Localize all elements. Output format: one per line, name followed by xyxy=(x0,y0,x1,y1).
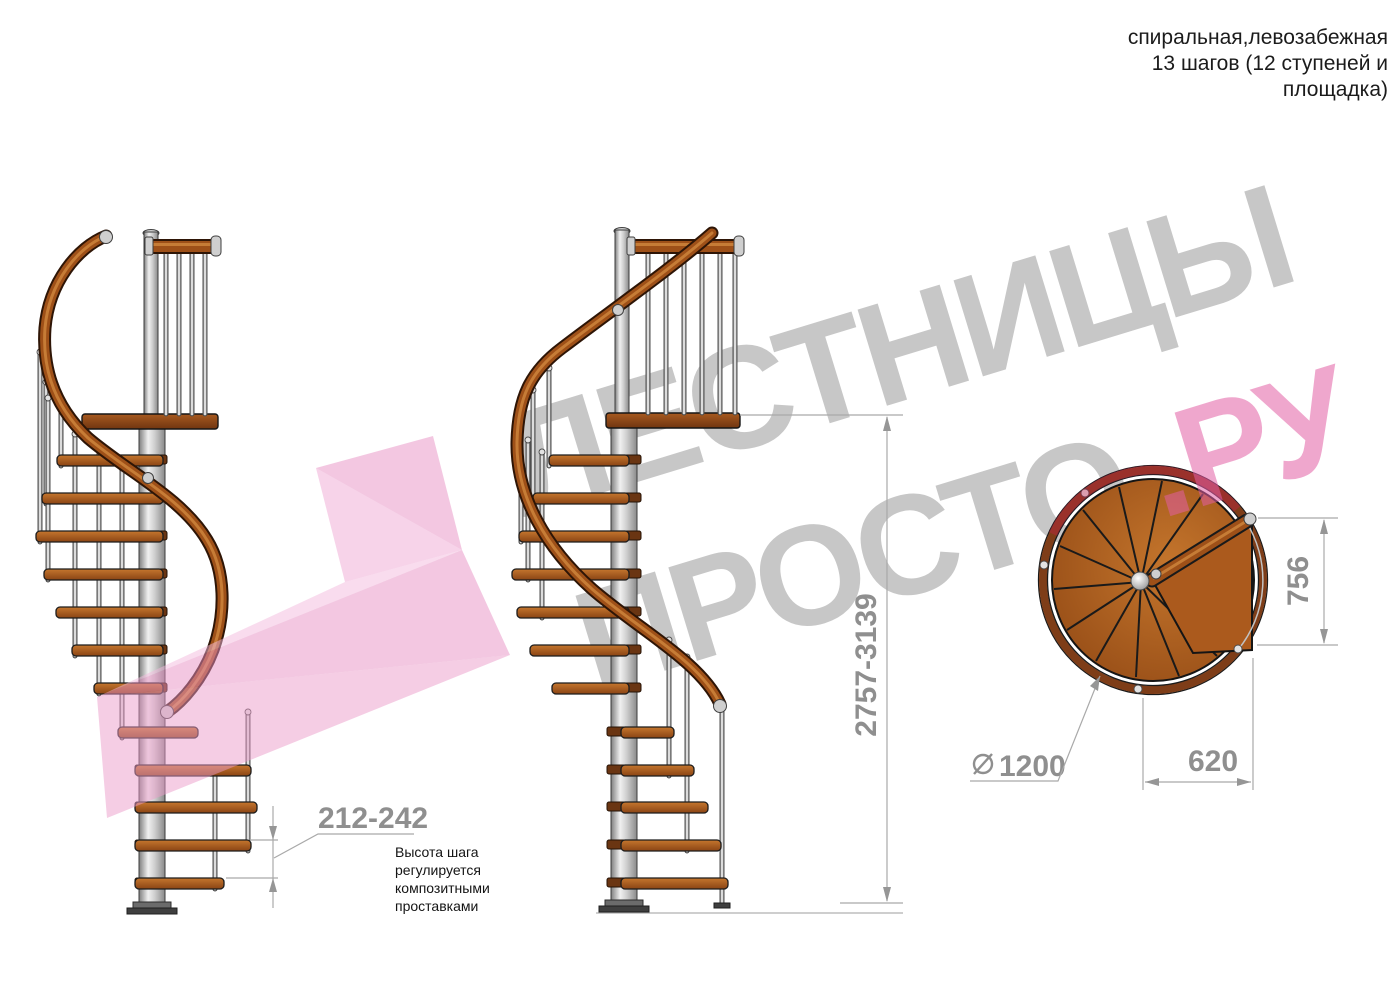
platform-board xyxy=(82,414,218,429)
note-line4: проставками xyxy=(395,898,478,914)
total-height-label: 2757-3139 xyxy=(850,593,883,736)
watermark-suffix: .РУ xyxy=(1124,334,1374,548)
header-line3: площадка) xyxy=(1283,78,1388,101)
diameter-callout: 1200 xyxy=(970,676,1100,783)
step-pitch-label: 212-242 xyxy=(318,802,428,835)
diameter-label: 1200 xyxy=(999,750,1066,783)
note-line1: Высота шага xyxy=(395,844,479,860)
landing-height-label: 756 xyxy=(1282,556,1315,606)
drawing-canvas: ЛЕСТНИЦЫ ПРОСТО xyxy=(0,0,1400,1000)
note-line3: композитными xyxy=(395,880,490,896)
header-line1: спиральная,левозабежная xyxy=(1128,26,1388,49)
staircase-drawing: ЛЕСТНИЦЫ ПРОСТО xyxy=(0,0,1400,1000)
diameter-icon xyxy=(974,754,992,774)
side-view-left xyxy=(36,230,257,915)
landing-width-label: 620 xyxy=(1188,745,1238,778)
header-line2: 13 шагов (12 ступеней и xyxy=(1152,52,1388,75)
note-line2: регулируется xyxy=(395,862,481,878)
center-pole-plan xyxy=(1131,572,1149,590)
